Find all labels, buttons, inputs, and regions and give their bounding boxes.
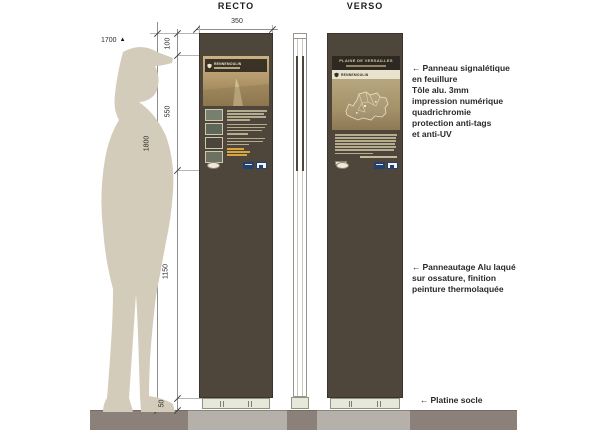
partner-logos xyxy=(243,162,267,169)
thumbnail-photo xyxy=(205,137,223,149)
legend-line xyxy=(227,151,250,153)
profile-cap-line xyxy=(294,38,306,39)
recto-panel: RENNEMOULIN xyxy=(199,33,273,398)
profile-platine-socle xyxy=(291,397,309,409)
legend-line xyxy=(227,148,244,150)
bolt-mark xyxy=(220,401,221,407)
bolt-mark xyxy=(248,401,249,407)
verso-sign-graphic: PLAINE DE VERSAILLES RENNEMOULIN xyxy=(332,56,400,171)
recto-photo-column xyxy=(205,109,223,165)
recto-text-lines xyxy=(227,110,267,158)
text-line xyxy=(227,116,266,118)
partner-logo-blue xyxy=(243,162,254,169)
width-dim-line xyxy=(196,29,278,30)
verso-sign-title: PLAINE DE VERSAILLES xyxy=(332,59,400,63)
annotation-text: Panneau signalétique xyxy=(423,63,510,73)
text-line xyxy=(227,113,264,115)
text-line xyxy=(227,144,249,146)
text-line xyxy=(227,138,265,140)
annotation-text: Panneautage Alu laqué xyxy=(423,262,516,272)
text-line xyxy=(335,140,396,142)
text-line xyxy=(227,110,267,112)
annotation-line: Tôle alu. 3mm xyxy=(412,85,582,96)
verso-platine-socle xyxy=(330,398,400,409)
partner-logo-white xyxy=(387,162,398,169)
recto-sign-title: RENNEMOULIN xyxy=(214,62,241,66)
annotation-platine-socle: ←Platine socle xyxy=(420,395,570,406)
segment-100-label: 100 xyxy=(165,24,172,64)
bolt-mark xyxy=(349,401,350,407)
text-line xyxy=(335,134,397,136)
verso-territory-map xyxy=(332,79,400,130)
recto-view-title: RECTO xyxy=(196,1,276,11)
oval-logo xyxy=(207,162,220,169)
profile-panel-blade xyxy=(302,56,304,171)
verso-view-title: VERSO xyxy=(325,1,405,11)
text-line xyxy=(335,149,394,151)
bolt-mark xyxy=(380,401,381,407)
text-line xyxy=(227,133,248,135)
text-line xyxy=(335,137,396,139)
ground-dark-right xyxy=(410,410,517,430)
bolt-mark xyxy=(377,401,378,407)
foundation-footing xyxy=(287,410,317,430)
annotation-line: protection anti-tags xyxy=(412,118,582,129)
text-line xyxy=(227,124,267,126)
signage-technical-drawing: RECTO VERSO 350 100 550 1150 50 1800 xyxy=(0,0,600,430)
annotation-line: en feuillure xyxy=(412,74,582,85)
level-1700-label: 1700▲ xyxy=(101,37,126,44)
annotation-line: impression numérique xyxy=(412,96,582,107)
width-dim-label: 350 xyxy=(217,18,257,25)
partner-logo-white xyxy=(256,162,267,169)
profile-view xyxy=(293,33,307,397)
verso-commune-band: RENNEMOULIN xyxy=(332,70,400,79)
text-line xyxy=(335,153,373,155)
shield-icon xyxy=(207,63,212,69)
recto-header-text: RENNEMOULIN xyxy=(214,62,241,69)
annotation-line: quadrichromie xyxy=(412,107,582,118)
text-line xyxy=(335,143,395,145)
text-line xyxy=(227,130,262,132)
annotation-line: et anti-UV xyxy=(412,129,582,140)
verso-commune-name: RENNEMOULIN xyxy=(341,73,368,77)
text-line xyxy=(335,146,396,148)
verso-sign-footer xyxy=(334,160,398,169)
recto-sign-graphic: RENNEMOULIN xyxy=(203,56,269,171)
bolt-mark xyxy=(251,401,252,407)
annotation-line: ←Panneautage Alu laqué xyxy=(412,262,582,273)
verso-sign-subtitle-line xyxy=(346,65,386,67)
text-line xyxy=(227,127,265,129)
text-line xyxy=(227,119,250,121)
shield-icon xyxy=(334,72,339,78)
segment-1150-label: 1150 xyxy=(163,252,170,292)
partner-logos xyxy=(374,162,398,169)
annotation-line: sur ossature, finition xyxy=(412,273,582,284)
recto-sign-subtitle-line xyxy=(214,67,240,69)
profile-panel-blade xyxy=(296,56,298,171)
partner-logo-blue xyxy=(374,162,385,169)
recto-platine-socle xyxy=(202,398,270,409)
annotation-panneautage-alu: ←Panneautage Alu laqué sur ossature, fin… xyxy=(412,262,582,295)
recto-sign-header: RENNEMOULIN xyxy=(205,59,267,72)
verso-sign-header: PLAINE DE VERSAILLES xyxy=(332,56,400,70)
legend-line xyxy=(227,154,247,156)
annotation-line: ←Panneau signalétique xyxy=(412,63,582,74)
annotation-text: Platine socle xyxy=(431,395,483,405)
annotation-panneau-signaletique: ←Panneau signalétique en feuillure Tôle … xyxy=(412,63,582,140)
segment-50-label: 50 xyxy=(159,384,166,424)
recto-sign-footer xyxy=(205,160,267,169)
bolt-mark xyxy=(351,401,352,407)
verso-panel: PLAINE DE VERSAILLES RENNEMOULIN xyxy=(327,33,403,398)
map-outline-graphic xyxy=(332,79,400,130)
thumbnail-photo xyxy=(205,109,223,121)
left-arrow-icon: ← xyxy=(412,63,421,73)
segment-550-label: 550 xyxy=(165,92,172,132)
recto-landscape-photo: RENNEMOULIN xyxy=(203,56,269,106)
level-marker-icon: ▲ xyxy=(120,37,126,43)
left-arrow-icon: ← xyxy=(412,262,421,272)
annotation-line: peinture thermolaquée xyxy=(412,284,582,295)
oval-logo xyxy=(336,162,349,169)
bolt-mark xyxy=(223,401,224,407)
thumbnail-photo xyxy=(205,123,223,135)
text-line xyxy=(227,141,263,143)
level-value: 1700 xyxy=(101,37,117,44)
total-height-label: 1800 xyxy=(144,124,151,164)
signature-line xyxy=(360,156,397,158)
left-arrow-icon: ← xyxy=(420,395,429,405)
